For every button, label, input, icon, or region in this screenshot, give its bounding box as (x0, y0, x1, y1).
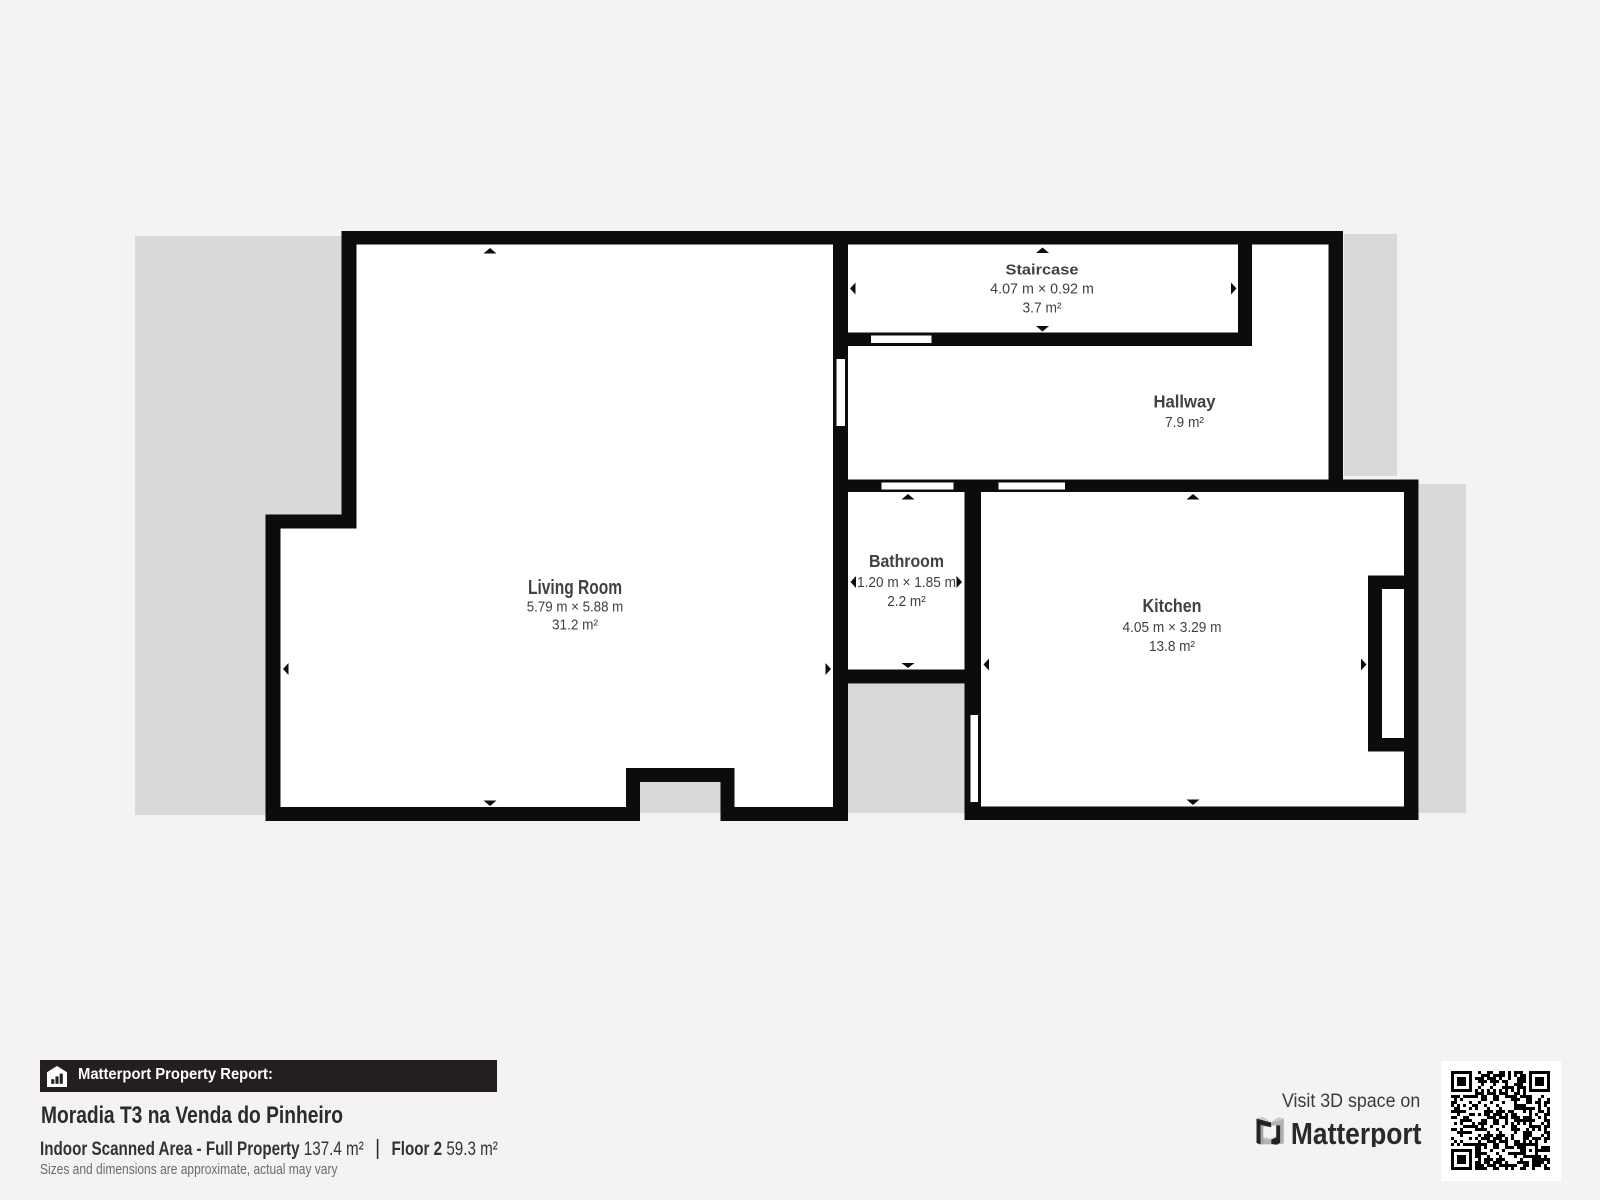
svg-text:Staircase: Staircase (1006, 263, 1079, 279)
svg-text:Hallway: Hallway (1154, 392, 1216, 412)
svg-text:31.2 m²: 31.2 m² (552, 618, 598, 634)
svg-text:7.9 m²: 7.9 m² (1165, 415, 1204, 431)
svg-text:1.20 m × 1.85 m: 1.20 m × 1.85 m (857, 575, 956, 591)
svg-text:13.8 m²: 13.8 m² (1149, 639, 1195, 655)
svg-text:Kitchen: Kitchen (1143, 596, 1202, 616)
svg-text:3.7 m²: 3.7 m² (1023, 301, 1062, 317)
svg-text:Bathroom: Bathroom (869, 551, 944, 571)
svg-text:Matterport: Matterport (1291, 1117, 1422, 1147)
svg-text:2.2 m²: 2.2 m² (887, 594, 926, 610)
svg-text:4.07 m × 0.92 m: 4.07 m × 0.92 m (990, 282, 1094, 298)
svg-text:4.05 m × 3.29 m: 4.05 m × 3.29 m (1123, 620, 1222, 636)
svg-text:Living Room: Living Room (528, 576, 622, 599)
svg-text:5.79 m × 5.88 m: 5.79 m × 5.88 m (527, 600, 624, 616)
